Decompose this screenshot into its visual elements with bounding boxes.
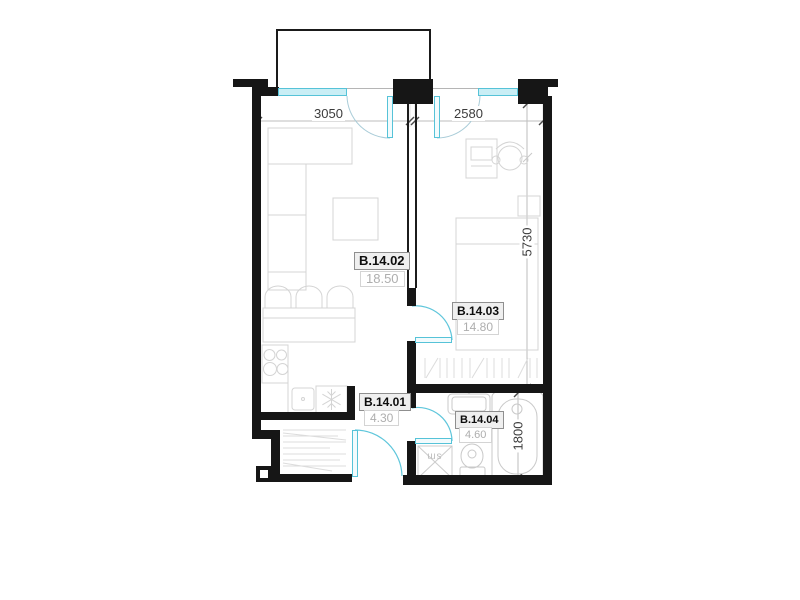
room-area-label: 14.80 [457, 319, 499, 335]
room-area-label: 4.30 [364, 410, 399, 426]
wall-bath-lower [407, 441, 416, 483]
bedroom-door-leaf [415, 337, 452, 343]
hall-wardrobe-icon [283, 430, 346, 471]
wall-stub-top-left [233, 79, 268, 87]
entrance-door-leaf [352, 430, 358, 477]
wall-living-bottom [252, 412, 355, 420]
wall-stub-top-right [548, 79, 558, 87]
shaft-label: sm [426, 451, 441, 462]
bathroom-door-leaf [415, 438, 452, 444]
room-code-label: B.14.02 [354, 252, 410, 270]
room-area-label: 4.60 [459, 427, 492, 443]
column-pier [256, 466, 272, 482]
window-living [278, 88, 347, 96]
nightstand-icon [518, 196, 540, 216]
wall-partition-stub-lower [407, 341, 416, 384]
kitchen-counter-icon [262, 308, 355, 412]
stove-icon [264, 350, 289, 376]
dimension-bathroom-height: 1800 [511, 420, 526, 453]
window-bedroom [478, 88, 518, 96]
dimension-bedroom-width: 2580 [452, 106, 485, 121]
balcony-door-leaf-bedroom [434, 96, 440, 138]
kitchen-sink-icon [292, 388, 314, 410]
dimension-right-height: 5730 [520, 226, 535, 259]
room-code-label: B.14.03 [452, 302, 504, 320]
bar-stools-icon [265, 286, 353, 308]
wall-bottom-hall [271, 474, 352, 482]
bedroom-wardrobe-icon [425, 358, 537, 378]
room-code-label: B.14.01 [359, 393, 411, 411]
chair-icon [492, 142, 532, 170]
sofa-icon [268, 128, 352, 290]
room-area-label: 18.50 [360, 271, 405, 287]
wall-left [252, 87, 261, 438]
refrigerator-icon [316, 386, 347, 413]
wall-right [543, 96, 552, 485]
wall-partition-stub-upper [407, 288, 416, 306]
toilet-icon [460, 444, 485, 477]
dimension-living-width: 3050 [312, 106, 345, 121]
floor-plan: B.14.02 18.50 B.14.03 14.80 B.14.01 4.30… [0, 0, 800, 600]
table-icon [333, 198, 378, 240]
wall-bottom-right [403, 475, 552, 485]
wall-pier-middle [393, 79, 433, 104]
balcony-door-leaf-living [387, 96, 393, 138]
wall-bed-bath-divider [407, 384, 552, 393]
